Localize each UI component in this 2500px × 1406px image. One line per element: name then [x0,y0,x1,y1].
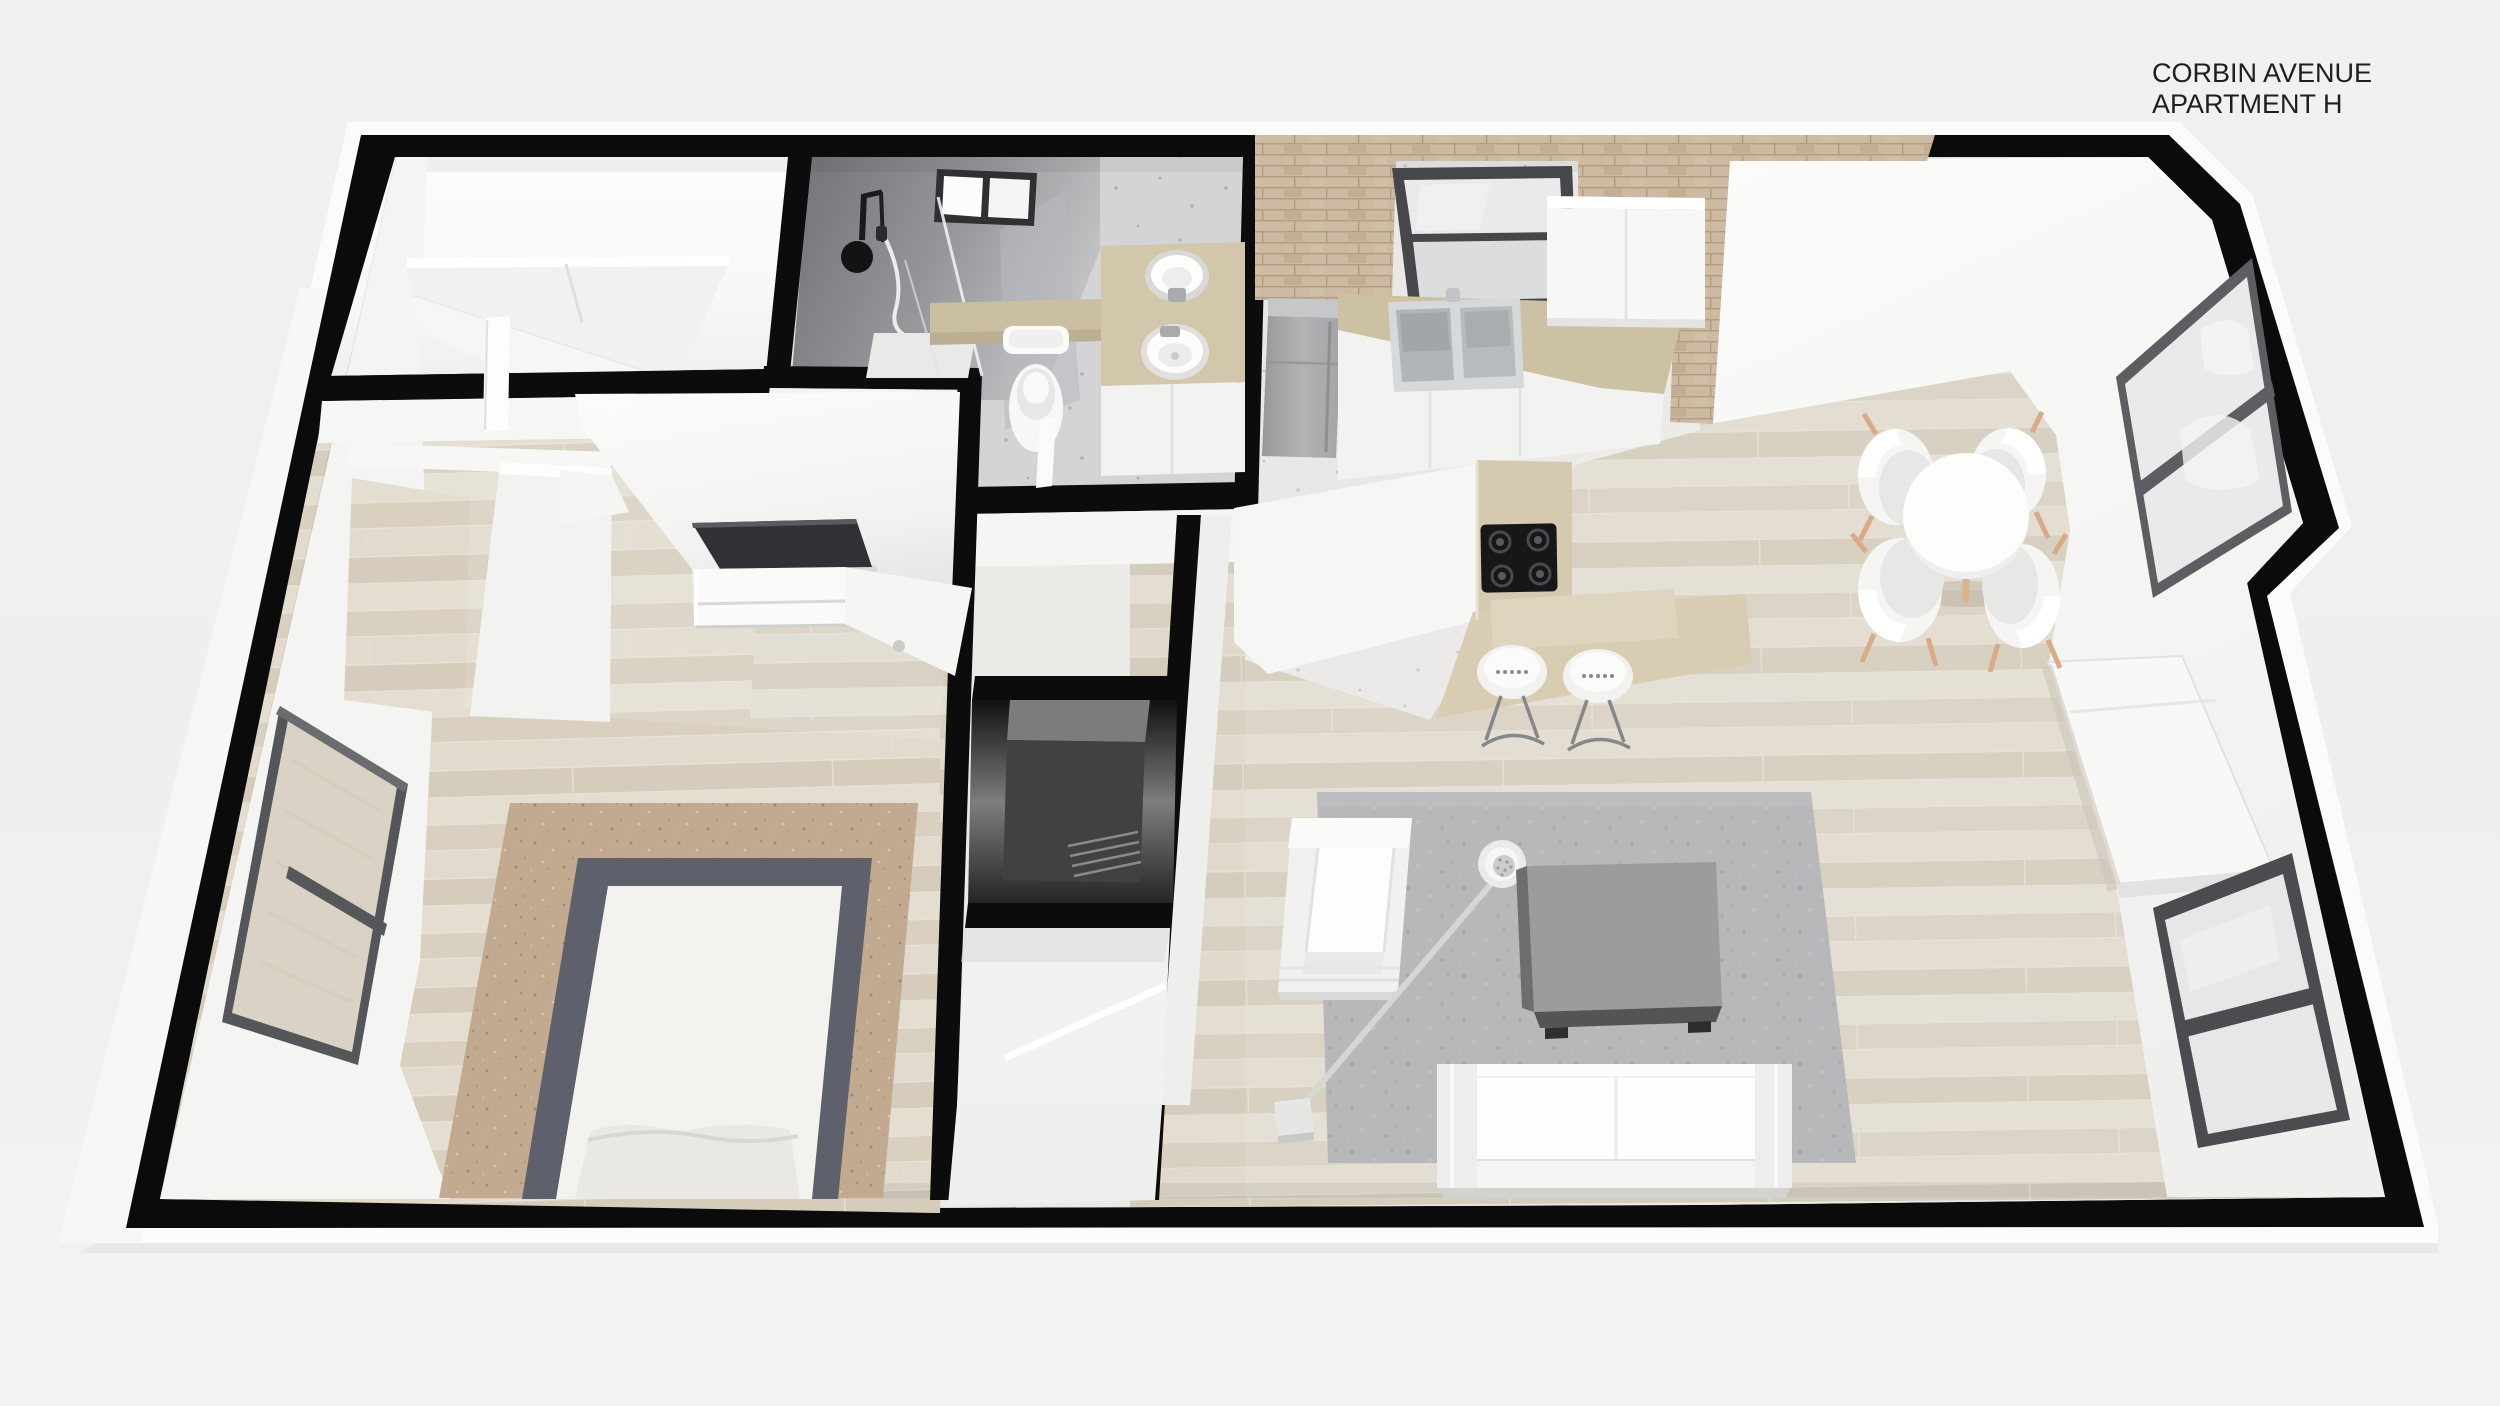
svg-text:CORBIN AVENUE: CORBIN AVENUE [2152,58,2372,88]
svg-text:APARTMENT H: APARTMENT H [2152,89,2343,119]
